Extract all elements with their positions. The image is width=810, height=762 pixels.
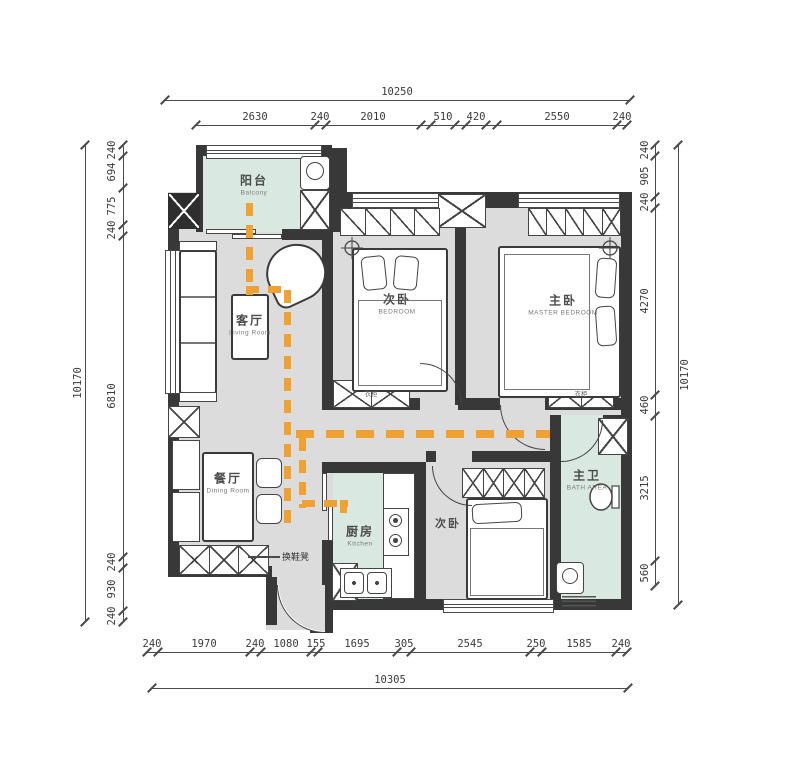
room-name-zh: 次卧 — [435, 518, 461, 530]
dim-label: 694 — [106, 163, 118, 182]
sink-basin — [344, 572, 364, 594]
leader-line — [248, 556, 280, 558]
dim-label: 510 — [434, 111, 453, 123]
dim-label: 155 — [307, 638, 326, 650]
room-name-zh: 主卫 — [573, 469, 601, 483]
wardrobe-cell — [566, 209, 584, 235]
wardrobe-master-top — [528, 208, 621, 236]
room-name-en: Dining Room — [206, 488, 249, 495]
room-label-bedroom1: 次卧 BEDROOM — [378, 291, 415, 316]
dim-label: 460 — [639, 396, 651, 415]
room-label-balcony: 阳台 Balcony — [240, 172, 268, 197]
path-main-vertical — [284, 290, 291, 523]
wardrobe-bedroom1-top — [340, 208, 440, 236]
wall-kitchen-right — [415, 462, 426, 610]
room-name-zh: 厨房 — [346, 525, 374, 539]
dim-label: 240 — [106, 221, 118, 240]
pillow — [393, 255, 420, 291]
sofa-armrest — [179, 241, 217, 251]
pillow — [472, 502, 523, 525]
pillow — [595, 305, 618, 346]
room-label-master: 主卧 MASTER BEDROOM — [528, 292, 597, 317]
curtain-track — [282, 229, 332, 240]
dim-label: 240 — [311, 111, 330, 123]
dim-label: 240 — [106, 141, 118, 160]
wardrobe-cell — [525, 469, 545, 497]
sofa-cushion-line — [181, 342, 215, 344]
window-bedroom3 — [443, 599, 554, 613]
dim-line-left-outer — [85, 145, 86, 622]
dining-table — [202, 452, 254, 542]
dim-line-bottom-inner — [147, 652, 627, 653]
shoe-bench — [179, 545, 269, 575]
wall-cabinet-left — [168, 406, 200, 438]
room-label-dining: 餐厅 Dining Room — [206, 470, 249, 495]
room-label-living: 客厅 Living Room — [229, 312, 271, 337]
wall-living-bedroom — [322, 232, 333, 410]
sink-basin — [367, 572, 387, 594]
dim-label: 2630 — [242, 111, 267, 123]
room-name-en: Balcony — [240, 190, 268, 197]
wall-bedroom-master — [455, 208, 466, 405]
balcony-cabinet — [300, 190, 330, 230]
path-kitchen-hook — [340, 500, 347, 522]
stove-burner-icon — [389, 514, 402, 527]
wardrobe-cell — [529, 209, 547, 235]
dining-chair — [256, 494, 282, 524]
wall-right — [621, 192, 632, 610]
wall-kitchen-top — [322, 462, 426, 473]
window-bedroom1 — [352, 193, 440, 208]
wall-bedroom3-top-b — [472, 451, 561, 462]
bench-cell — [210, 546, 240, 574]
wardrobe-label: 衣柜 — [575, 388, 588, 398]
room-name-en: BATH AREA — [567, 485, 608, 492]
dim-label: 250 — [527, 638, 546, 650]
dim-label: 1585 — [566, 638, 591, 650]
room-name-en: BEDROOM — [378, 309, 415, 316]
wardrobe-cell — [584, 209, 602, 235]
dim-line-right-inner — [655, 145, 656, 586]
dim-label: 560 — [639, 564, 651, 583]
wardrobe-cell — [366, 209, 391, 235]
wardrobe-cell — [484, 469, 505, 497]
path-branch-vertical — [299, 438, 306, 508]
sofa — [179, 250, 217, 394]
room-name-zh: 餐厅 — [214, 472, 242, 486]
shaft-between-bedrooms — [438, 194, 486, 228]
washer-drum-icon — [562, 568, 578, 584]
dim-total-right: 10170 — [679, 359, 691, 391]
washer-drum-icon — [306, 162, 324, 180]
shoe-bench-label: 换鞋凳 — [282, 550, 309, 563]
wardrobe-label: 衣柜 — [365, 388, 378, 398]
side-cabinet — [172, 492, 200, 542]
room-label-kitchen: 厨房 Kitchen — [346, 523, 374, 548]
dim-label: 240 — [106, 607, 118, 626]
dim-total-top: 10250 — [381, 86, 413, 98]
pillow — [595, 257, 618, 298]
dim-label: 3215 — [639, 475, 651, 500]
dim-label: 240 — [106, 553, 118, 572]
dim-label: 2550 — [544, 111, 569, 123]
dim-label: 240 — [639, 141, 651, 160]
dim-line-bottom-outer — [152, 688, 628, 689]
dim-label: 420 — [467, 111, 486, 123]
dim-label: 2545 — [457, 638, 482, 650]
path-corridor — [296, 430, 550, 438]
ceiling-light-icon — [340, 236, 364, 260]
bench-cell — [239, 546, 268, 574]
dim-total-left: 10170 — [72, 367, 84, 399]
dim-label: 305 — [395, 638, 414, 650]
room-name-zh: 主卧 — [549, 294, 577, 308]
pillow — [360, 255, 387, 291]
sofa-cushion-line — [181, 296, 215, 298]
bath-mat — [562, 596, 596, 609]
room-name-en: MASTER BEDROOM — [528, 310, 597, 317]
dim-label: 1695 — [344, 638, 369, 650]
room-label-bedroom3: 次卧 — [435, 515, 461, 531]
floor-plan-canvas: 衣柜 衣柜 — [0, 0, 810, 762]
bench-cell — [180, 546, 210, 574]
stove-burner-icon — [389, 534, 402, 547]
path-jog — [246, 286, 288, 293]
dim-line-top-outer — [165, 100, 630, 101]
dim-label: 6810 — [106, 383, 118, 408]
sliding-door-panel — [328, 503, 333, 541]
wardrobe-bedroom3 — [462, 468, 545, 498]
ceiling-light-icon — [598, 236, 622, 260]
wardrobe-cell — [415, 209, 439, 235]
column-left-of-balcony — [168, 193, 200, 229]
dim-line-left-inner — [123, 145, 124, 622]
wardrobe-cell — [603, 209, 620, 235]
wall-bedroom3-top-a — [426, 451, 436, 462]
wall-foyer-left — [266, 577, 277, 625]
sofa-armrest — [179, 392, 217, 402]
window-master — [518, 193, 620, 208]
outside-cutout — [168, 577, 266, 610]
dim-label: 240 — [613, 111, 632, 123]
dim-label: 1080 — [273, 638, 298, 650]
room-label-bath: 主卫 BATH AREA — [567, 467, 608, 492]
wall-under-bedrooms-mid — [458, 398, 500, 410]
sliding-door-panel — [232, 234, 282, 239]
dim-label: 240 — [639, 193, 651, 212]
dim-label: 240 — [612, 638, 631, 650]
dim-label: 905 — [639, 167, 651, 186]
path-balcony — [246, 203, 253, 295]
bed-blanket — [470, 528, 544, 596]
room-name-en: Living Room — [229, 330, 271, 337]
dim-label: 930 — [106, 580, 118, 599]
wardrobe-cell — [504, 469, 525, 497]
bed-blanket — [504, 254, 590, 390]
dim-total-bottom: 10305 — [374, 674, 406, 686]
wardrobe-cell — [391, 209, 416, 235]
dim-label: 1970 — [191, 638, 216, 650]
wardrobe-cell — [341, 209, 366, 235]
dining-chair — [256, 458, 282, 488]
dim-label: 4270 — [639, 288, 651, 313]
dim-label: 240 — [246, 638, 265, 650]
room-name-zh: 客厅 — [236, 314, 264, 328]
dim-label: 775 — [106, 197, 118, 216]
dim-label: 240 — [143, 638, 162, 650]
room-name-en: Kitchen — [346, 541, 374, 548]
dim-label: 2010 — [360, 111, 385, 123]
wardrobe-cell — [547, 209, 565, 235]
dim-line-top-inner — [196, 125, 627, 126]
room-name-zh: 次卧 — [383, 293, 411, 307]
room-name-zh: 阳台 — [240, 174, 268, 188]
side-cabinet — [172, 440, 200, 490]
